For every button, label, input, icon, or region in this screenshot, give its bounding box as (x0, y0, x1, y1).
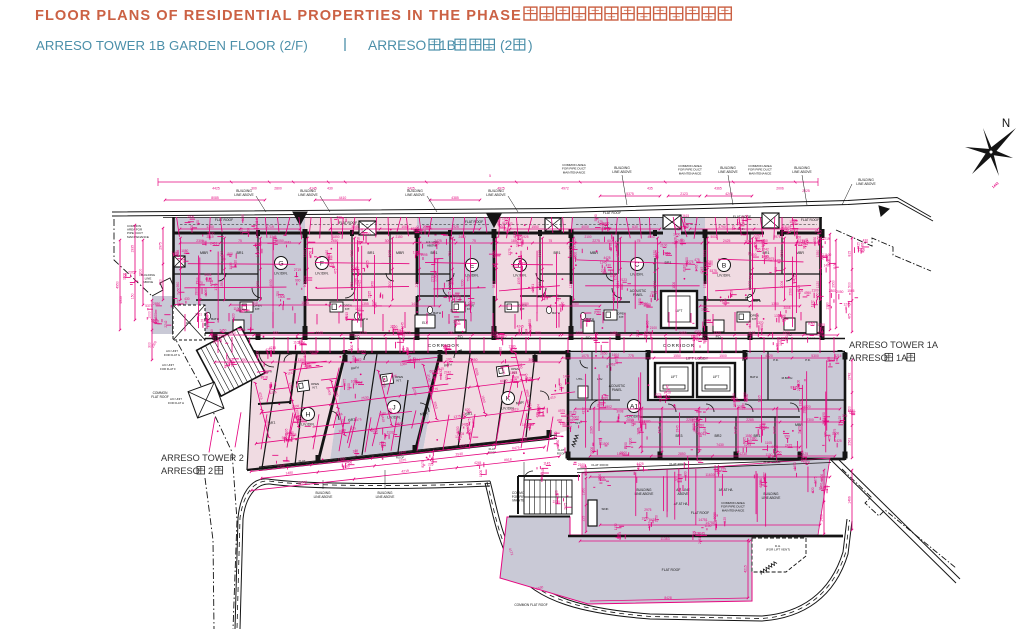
svg-text:PANEL: PANEL (633, 293, 643, 297)
svg-text:LINE ABOVE: LINE ABOVE (486, 193, 506, 197)
svg-text:2850: 2850 (153, 302, 160, 306)
svg-text:2123: 2123 (212, 336, 216, 343)
svg-text:LINE ABOVE: LINE ABOVE (376, 495, 395, 499)
svg-text:1132: 1132 (614, 523, 618, 530)
svg-text:2975: 2975 (159, 242, 163, 250)
svg-text:1100: 1100 (303, 250, 307, 257)
svg-text:ARRESO TOWER 1A: ARRESO TOWER 1A (849, 340, 939, 350)
svg-text:1100: 1100 (833, 263, 837, 270)
svg-text:6110: 6110 (234, 260, 238, 267)
svg-text:500: 500 (751, 253, 757, 257)
svg-text:1500: 1500 (512, 263, 519, 267)
svg-text:MBR: MBR (396, 251, 404, 255)
svg-text:8918: 8918 (520, 437, 528, 442)
svg-text:LINE ABOVE: LINE ABOVE (635, 492, 654, 496)
svg-text:2186: 2186 (277, 464, 285, 469)
svg-text:1775: 1775 (637, 427, 641, 434)
svg-text:900: 900 (560, 302, 564, 308)
svg-text:1425: 1425 (782, 331, 790, 335)
svg-text:3200: 3200 (629, 438, 633, 445)
svg-text:1120: 1120 (231, 313, 235, 320)
svg-text:8085: 8085 (702, 336, 706, 343)
svg-text:5300: 5300 (811, 354, 819, 358)
svg-text:4145: 4145 (723, 298, 727, 305)
svg-text:2850: 2850 (555, 294, 559, 301)
svg-text:2450: 2450 (816, 235, 820, 242)
svg-text:FLAT ROOF: FLAT ROOF (151, 395, 169, 399)
svg-text:8918: 8918 (504, 457, 512, 462)
svg-text:2461: 2461 (608, 363, 615, 367)
svg-text:200: 200 (241, 358, 247, 362)
svg-text:CORRIDOR: CORRIDOR (663, 343, 695, 348)
svg-text:FLAT ROOF: FLAT ROOF (801, 218, 819, 222)
svg-text:2300: 2300 (806, 418, 814, 422)
svg-text:1132: 1132 (849, 411, 856, 415)
svg-text:2800: 2800 (829, 289, 836, 293)
svg-text:8085: 8085 (211, 196, 219, 200)
svg-text:8428: 8428 (664, 390, 671, 394)
svg-text:8428: 8428 (303, 350, 307, 357)
svg-text:4215: 4215 (345, 312, 349, 319)
svg-text:1255: 1255 (196, 277, 200, 284)
svg-text:P.D.: P.D. (773, 358, 779, 362)
svg-text:950: 950 (785, 435, 791, 439)
svg-text:1320: 1320 (643, 419, 650, 423)
svg-text:1550: 1550 (220, 281, 224, 289)
svg-text:2123: 2123 (569, 410, 576, 414)
svg-text:900: 900 (535, 331, 541, 335)
svg-text:1925: 1925 (521, 235, 528, 239)
svg-text:300: 300 (385, 239, 391, 243)
svg-text:2285: 2285 (221, 254, 225, 261)
svg-text:UTIL.: UTIL. (576, 377, 584, 381)
svg-text:500: 500 (159, 279, 163, 285)
svg-text:2123: 2123 (798, 426, 802, 434)
svg-text:1440: 1440 (398, 450, 406, 455)
svg-text:KIT.: KIT. (619, 315, 624, 319)
svg-text:1604: 1604 (612, 353, 619, 357)
svg-text:475: 475 (209, 281, 213, 287)
svg-text:410: 410 (252, 301, 258, 305)
svg-text:1320: 1320 (455, 435, 462, 439)
svg-text:8918: 8918 (444, 344, 451, 348)
svg-text:6230: 6230 (739, 452, 747, 456)
svg-text:2006: 2006 (187, 215, 194, 219)
svg-text:8085: 8085 (808, 321, 815, 325)
svg-text:1775: 1775 (240, 228, 244, 235)
svg-text:410: 410 (650, 294, 656, 298)
svg-text:KIT.: KIT. (397, 379, 402, 383)
svg-text:FLAT ROOF: FLAT ROOF (465, 220, 483, 224)
svg-text:2525: 2525 (406, 347, 410, 354)
svg-text:3615: 3615 (469, 300, 473, 307)
svg-text:LIFT: LIFT (676, 309, 683, 313)
svg-text:2375: 2375 (694, 417, 701, 421)
svg-text:8175: 8175 (734, 426, 738, 434)
svg-text:75: 75 (238, 239, 242, 243)
svg-text:BR1: BR1 (237, 251, 244, 255)
svg-text:2400: 2400 (679, 331, 687, 335)
svg-text:620: 620 (465, 408, 471, 412)
svg-text:1100: 1100 (696, 338, 703, 342)
svg-text:ROOF: ROOF (557, 452, 566, 456)
svg-text:5530: 5530 (594, 214, 598, 221)
svg-text:410: 410 (550, 395, 556, 400)
svg-text:1775: 1775 (359, 331, 367, 335)
svg-text:1500: 1500 (719, 354, 727, 358)
svg-text:6475: 6475 (512, 446, 520, 451)
svg-text:75: 75 (201, 240, 205, 244)
svg-text:1500: 1500 (602, 442, 609, 446)
svg-text:2742: 2742 (653, 281, 657, 289)
svg-text:1604: 1604 (525, 328, 529, 335)
svg-text:2525: 2525 (802, 189, 810, 193)
svg-text:2719: 2719 (294, 268, 301, 272)
svg-text:M.BATH: M.BATH (782, 376, 793, 380)
svg-text:4950: 4950 (804, 291, 811, 295)
svg-text:1380: 1380 (351, 265, 355, 272)
svg-text:4950: 4950 (269, 279, 273, 286)
svg-text:1132: 1132 (748, 331, 755, 335)
svg-text:4385: 4385 (451, 196, 459, 200)
svg-text:1850: 1850 (309, 251, 313, 258)
svg-text:225: 225 (555, 493, 559, 499)
svg-text:900: 900 (295, 279, 301, 283)
svg-text:4219: 4219 (792, 274, 796, 281)
svg-text:LINE ABOVE: LINE ABOVE (314, 495, 333, 499)
svg-text:2100: 2100 (584, 235, 591, 239)
svg-text:1550: 1550 (703, 281, 707, 289)
svg-text:2123: 2123 (620, 278, 627, 282)
svg-text:1A: 1A (896, 353, 908, 363)
svg-text:1380: 1380 (560, 422, 567, 426)
svg-text:5: 5 (489, 174, 491, 178)
svg-text:LIV./DIN.: LIV./DIN. (717, 274, 731, 278)
svg-text:6005: 6005 (430, 369, 437, 373)
svg-text:2450: 2450 (432, 241, 439, 245)
svg-text:LIV./DIN.: LIV./DIN. (630, 273, 644, 277)
svg-text:2050: 2050 (836, 290, 843, 294)
svg-text:LIV./DIN.: LIV./DIN. (315, 272, 329, 276)
svg-text:1145: 1145 (543, 461, 550, 465)
svg-text:2050: 2050 (456, 426, 460, 433)
svg-text:1080: 1080 (706, 260, 713, 264)
svg-text:100: 100 (352, 449, 358, 453)
svg-text:4975: 4975 (833, 428, 837, 435)
svg-text:4215: 4215 (694, 330, 701, 334)
svg-text:1000: 1000 (598, 476, 605, 480)
svg-text:1480: 1480 (646, 320, 650, 327)
svg-text:4219: 4219 (616, 250, 620, 258)
svg-text:1100: 1100 (824, 253, 831, 257)
svg-text:MAINTENANCE: MAINTENANCE (679, 171, 702, 175)
svg-text:4950: 4950 (119, 296, 123, 304)
svg-text:4425: 4425 (748, 320, 752, 327)
svg-text:2100: 2100 (578, 463, 585, 467)
svg-text:750: 750 (466, 276, 470, 282)
svg-text:INT.: INT. (575, 421, 581, 425)
svg-text:2500: 2500 (780, 250, 784, 258)
svg-text:475: 475 (333, 268, 337, 274)
svg-text:4425: 4425 (783, 314, 787, 321)
svg-text:SINK: SINK (601, 507, 608, 511)
svg-text:500: 500 (273, 331, 279, 335)
svg-text:750: 750 (448, 331, 454, 335)
svg-text:FLAT ROOF: FLAT ROOF (691, 511, 709, 515)
svg-text:FOR FLAT H: FOR FLAT H (168, 401, 184, 405)
svg-text:1550: 1550 (470, 358, 478, 362)
svg-text:2742: 2742 (848, 372, 852, 380)
svg-text:100: 100 (684, 471, 688, 477)
svg-text:ELV: ELV (422, 321, 429, 325)
svg-text:8085: 8085 (204, 288, 208, 295)
svg-text:P.D.: P.D. (805, 358, 811, 362)
svg-text:1850: 1850 (332, 235, 339, 239)
svg-text:2285: 2285 (590, 426, 594, 434)
svg-text:950: 950 (310, 350, 316, 354)
svg-text:75: 75 (472, 239, 476, 243)
svg-text:11383: 11383 (660, 537, 669, 541)
svg-text:1425: 1425 (835, 439, 842, 443)
svg-text:2975: 2975 (773, 235, 780, 239)
svg-text:750: 750 (276, 291, 280, 297)
svg-text:2100: 2100 (650, 326, 657, 330)
svg-text:2742: 2742 (284, 241, 291, 245)
svg-text:1995: 1995 (744, 240, 751, 244)
svg-text:BR1: BR1 (554, 251, 561, 255)
svg-text:300: 300 (528, 358, 534, 362)
svg-text:4375: 4375 (399, 458, 407, 463)
svg-text:1100: 1100 (603, 224, 607, 231)
svg-text:1255: 1255 (491, 331, 499, 335)
svg-text:1100: 1100 (298, 358, 305, 362)
svg-text:LINE ABOVE: LINE ABOVE (298, 193, 318, 197)
svg-text:4425: 4425 (205, 277, 212, 281)
svg-text:3615: 3615 (566, 414, 573, 418)
svg-text:2461: 2461 (531, 284, 535, 291)
svg-text:AF AT H/L: AF AT H/L (719, 488, 734, 492)
svg-text:ARRESO TOWER 1B GARDEN FLOOR: ARRESO TOWER 1B GARDEN FLOOR (2/F) (36, 38, 308, 53)
svg-text:5530: 5530 (434, 274, 438, 281)
svg-text:2525: 2525 (401, 333, 405, 340)
svg-text:ARRESO: ARRESO (849, 353, 888, 363)
svg-text:4215: 4215 (269, 346, 276, 350)
svg-text:225: 225 (827, 356, 831, 362)
svg-text:5375: 5375 (395, 329, 402, 333)
svg-text:1935: 1935 (229, 262, 233, 269)
svg-text:1132: 1132 (241, 214, 245, 221)
svg-text:2050: 2050 (697, 423, 704, 427)
svg-text:1425: 1425 (411, 302, 419, 306)
svg-text:2850: 2850 (678, 452, 686, 456)
svg-text:2800: 2800 (567, 419, 574, 423)
svg-text:1550: 1550 (624, 442, 628, 449)
svg-text:620: 620 (445, 375, 449, 381)
svg-text:7430: 7430 (716, 443, 724, 447)
svg-text:4245: 4245 (431, 457, 435, 464)
svg-text:MAINTENANCE: MAINTENANCE (749, 171, 772, 175)
svg-text:11630: 11630 (705, 473, 714, 477)
svg-text:2425: 2425 (815, 230, 822, 234)
svg-text:FLOOR PLANS OF RESIDENTIAL PRO: FLOOR PLANS OF RESIDENTIAL PROPERTIES IN… (35, 8, 522, 24)
svg-text:900: 900 (227, 252, 233, 256)
svg-text:1850: 1850 (617, 452, 625, 456)
svg-text:3200: 3200 (347, 383, 351, 390)
svg-text:950: 950 (732, 225, 736, 231)
svg-text:FOR FLAT F: FOR FLAT F (160, 367, 176, 371)
svg-text:8085: 8085 (462, 412, 466, 419)
svg-text:900: 900 (196, 220, 200, 226)
svg-text:815: 815 (848, 251, 852, 257)
svg-text:8085: 8085 (152, 320, 159, 324)
svg-text:2285: 2285 (498, 347, 502, 354)
svg-text:3200: 3200 (590, 447, 594, 454)
svg-text:75: 75 (672, 405, 676, 409)
svg-text:8175: 8175 (421, 460, 425, 467)
svg-text:ABOVE: ABOVE (678, 492, 689, 496)
svg-text:1370: 1370 (756, 321, 763, 325)
svg-text:4245: 4245 (725, 192, 733, 196)
svg-text:MAINTENANCE: MAINTENANCE (563, 170, 586, 174)
svg-text:1466: 1466 (820, 514, 824, 522)
svg-text:2275: 2275 (592, 239, 600, 243)
svg-text:ARRESO TOWER 2: ARRESO TOWER 2 (161, 453, 244, 463)
svg-text:300: 300 (822, 419, 826, 425)
svg-text:2450: 2450 (177, 287, 181, 294)
svg-text:4425: 4425 (637, 462, 644, 466)
svg-text:1080: 1080 (701, 307, 708, 311)
svg-text:1000: 1000 (673, 233, 680, 237)
svg-text:LIFT: LIFT (713, 375, 720, 379)
svg-text:2742: 2742 (164, 320, 168, 327)
svg-text:225: 225 (582, 516, 586, 522)
svg-text:LINE ABOVE: LINE ABOVE (234, 193, 254, 197)
svg-text:KIT.: KIT. (255, 307, 260, 311)
svg-text:200: 200 (415, 282, 419, 288)
svg-text:1995: 1995 (779, 336, 786, 340)
svg-text:1550: 1550 (745, 434, 752, 438)
svg-text:FLAT ROOF: FLAT ROOF (591, 463, 608, 467)
svg-text:2461: 2461 (210, 241, 217, 245)
svg-text:3615: 3615 (492, 281, 496, 289)
svg-text:2285: 2285 (746, 418, 754, 422)
svg-text:2450: 2450 (219, 328, 226, 332)
svg-text:6110: 6110 (683, 265, 687, 272)
svg-text:2425: 2425 (723, 239, 731, 243)
svg-text:1120: 1120 (816, 281, 820, 288)
svg-text:2425: 2425 (820, 326, 824, 333)
svg-text:1466: 1466 (171, 251, 178, 255)
svg-text:430: 430 (863, 238, 869, 242)
svg-text:300: 300 (842, 414, 848, 418)
svg-text:4410: 4410 (339, 196, 347, 200)
svg-text:620: 620 (811, 487, 815, 493)
svg-text:ABOVE: ABOVE (143, 280, 153, 284)
svg-text:950: 950 (815, 292, 819, 298)
svg-text:2500: 2500 (789, 288, 793, 295)
svg-text:LIV./DIN.: LIV./DIN. (301, 423, 315, 427)
svg-text:4172: 4172 (177, 299, 181, 306)
svg-text:2375: 2375 (128, 270, 135, 274)
svg-text:MAINTENANCE: MAINTENANCE (722, 508, 745, 512)
svg-text:BR3: BR3 (676, 434, 683, 438)
svg-text:KIT.: KIT. (345, 307, 350, 311)
svg-text:1466: 1466 (584, 468, 588, 475)
svg-text:950: 950 (176, 282, 180, 288)
svg-text:1000: 1000 (732, 393, 736, 400)
svg-text:2425: 2425 (447, 291, 451, 298)
svg-text:D.H.: D.H. (186, 321, 192, 325)
svg-text:14751: 14751 (705, 521, 715, 525)
svg-text:475: 475 (848, 313, 852, 319)
svg-text:2800: 2800 (194, 288, 198, 295)
svg-text:1B: 1B (439, 38, 456, 53)
svg-text:430: 430 (262, 369, 266, 375)
svg-text:4950: 4950 (116, 281, 120, 289)
svg-text:(FOR LIFT VENT): (FOR LIFT VENT) (766, 548, 790, 552)
svg-text:3200: 3200 (460, 279, 464, 286)
svg-text:75: 75 (692, 530, 696, 534)
svg-text:5375: 5375 (411, 227, 418, 231)
svg-text:ARRESO: ARRESO (161, 466, 200, 476)
svg-text:1275: 1275 (569, 281, 573, 289)
svg-text:2123: 2123 (763, 475, 767, 482)
svg-text:1850: 1850 (591, 336, 598, 340)
svg-text:1480: 1480 (338, 457, 346, 462)
svg-text:2300: 2300 (528, 319, 532, 326)
svg-text:3345: 3345 (675, 425, 679, 432)
svg-text:F: F (320, 260, 324, 267)
svg-text:75: 75 (594, 332, 598, 336)
svg-text:8085: 8085 (773, 426, 777, 434)
svg-text:4802: 4802 (604, 405, 612, 409)
svg-text:2719: 2719 (206, 235, 213, 239)
svg-text:1550: 1550 (673, 354, 681, 358)
svg-text:LIFT: LIFT (671, 375, 678, 379)
svg-text:2742: 2742 (762, 248, 769, 252)
svg-text:2850: 2850 (663, 251, 670, 255)
svg-text:3200: 3200 (139, 269, 143, 277)
svg-text:475: 475 (350, 426, 356, 431)
svg-text:1600: 1600 (820, 474, 824, 481)
svg-text:75: 75 (637, 239, 641, 243)
svg-text:4172: 4172 (569, 422, 573, 429)
svg-text:1100: 1100 (672, 282, 676, 289)
svg-text:MBR: MBR (200, 251, 208, 255)
svg-text:2285: 2285 (231, 360, 235, 367)
svg-text:8918: 8918 (261, 375, 268, 379)
svg-text:2719: 2719 (266, 225, 274, 229)
svg-text:300: 300 (251, 187, 257, 191)
svg-text:4245: 4245 (517, 325, 524, 329)
svg-text:1600: 1600 (246, 228, 250, 235)
svg-text:2285: 2285 (644, 331, 648, 338)
svg-text:1100: 1100 (766, 453, 773, 457)
svg-text:4219: 4219 (210, 329, 214, 336)
svg-text:4425: 4425 (212, 187, 220, 191)
svg-text:1370: 1370 (631, 419, 635, 426)
svg-text:1370: 1370 (228, 331, 236, 335)
svg-text:LAV.: LAV. (597, 377, 603, 381)
svg-text:75: 75 (548, 239, 552, 243)
svg-text:5375: 5375 (626, 192, 634, 196)
svg-text:2975: 2975 (563, 502, 567, 509)
svg-text:2461: 2461 (698, 537, 702, 544)
svg-text:2150: 2150 (395, 235, 402, 239)
svg-text:4219: 4219 (350, 250, 354, 258)
svg-text:LINE ABOVE: LINE ABOVE (405, 193, 425, 197)
svg-text:1995: 1995 (650, 290, 657, 294)
